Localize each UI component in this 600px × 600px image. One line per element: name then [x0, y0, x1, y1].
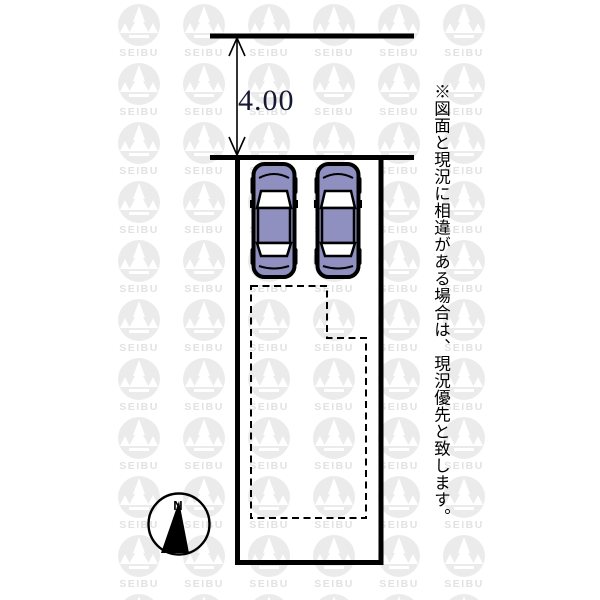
site-plan-canvas: SEIBU [0, 0, 600, 600]
car-1 [250, 164, 298, 277]
dimension-label: 4.00 [238, 84, 295, 118]
car-2 [314, 164, 362, 277]
site-plan-drawing: SEIBU [0, 0, 600, 600]
compass-north-label: N [173, 498, 182, 513]
disclaimer-note: ※図面と現況に相違がある場合は、現況優先と致します。 [429, 83, 450, 553]
